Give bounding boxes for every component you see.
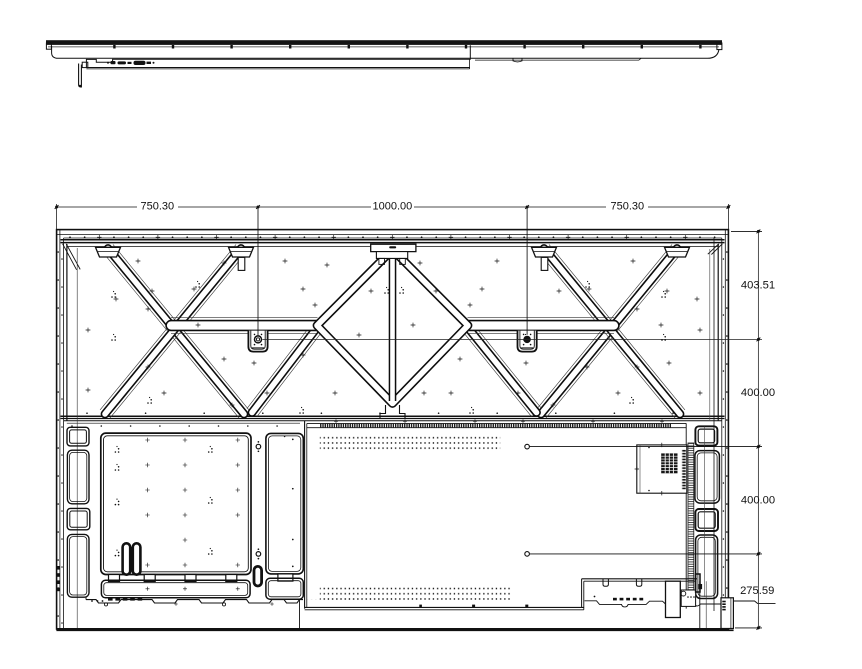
- svg-text:750.30: 750.30: [140, 200, 174, 212]
- svg-text:400.00: 400.00: [741, 387, 775, 399]
- svg-text:1000.00: 1000.00: [373, 200, 413, 212]
- svg-text:750.30: 750.30: [610, 200, 644, 212]
- svg-text:275.59: 275.59: [740, 585, 774, 597]
- svg-text:400.00: 400.00: [741, 494, 775, 506]
- svg-text:403.51: 403.51: [741, 280, 775, 292]
